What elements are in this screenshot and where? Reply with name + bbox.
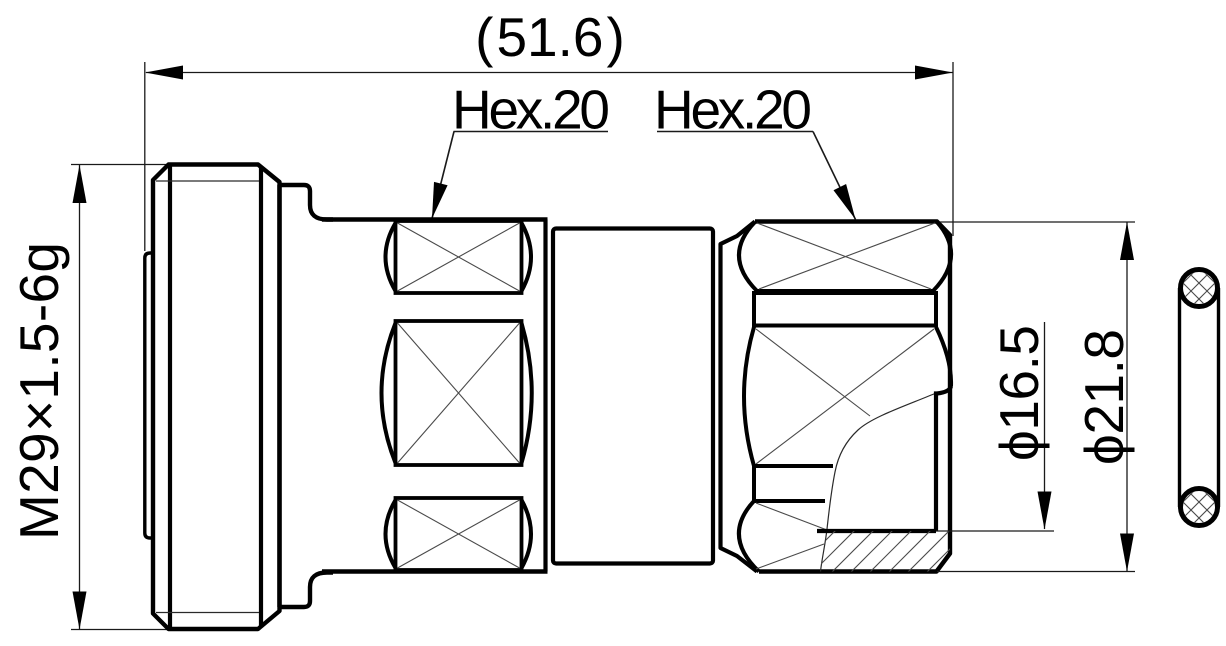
svg-text:ϕ21.8: ϕ21.8 bbox=[1073, 329, 1135, 465]
svg-text:(51.6): (51.6) bbox=[475, 6, 625, 68]
svg-text:ϕ16.5: ϕ16.5 bbox=[988, 325, 1050, 461]
svg-text:M29×1.5-6g: M29×1.5-6g bbox=[8, 242, 70, 540]
